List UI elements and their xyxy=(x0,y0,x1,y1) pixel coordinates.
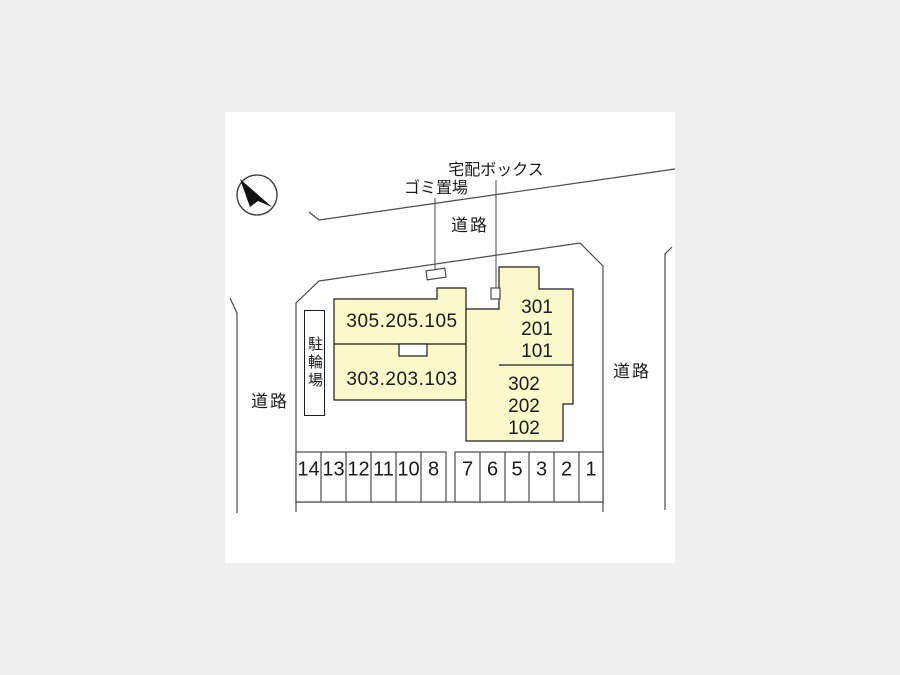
unit-102: 102 xyxy=(508,418,540,440)
parking-space-13: 13 xyxy=(322,459,344,482)
delivery-box-label: 宅配ボックス xyxy=(448,162,544,180)
parking-space-11: 11 xyxy=(373,459,394,482)
parking-space-3: 3 xyxy=(536,459,547,482)
right-road-line xyxy=(665,247,672,510)
bicycle-parking-area: 駐輪場 xyxy=(304,310,325,416)
parking-space-5: 5 xyxy=(511,459,522,482)
west-upper-units-label: 305.205.105 xyxy=(346,311,457,333)
parking-space-2: 2 xyxy=(561,459,572,482)
plan-drawing xyxy=(0,0,900,675)
east-lower-units-label: 302 202 102 xyxy=(508,374,540,440)
road-label-top: 道路 xyxy=(451,216,489,236)
road-label-left: 道路 xyxy=(251,392,289,412)
parking-space-6: 6 xyxy=(487,459,498,482)
bicycle-parking-label: 駐輪場 xyxy=(307,336,322,390)
west-building-entrance-notch xyxy=(399,344,427,356)
parking-space-8: 8 xyxy=(428,459,439,482)
unit-202: 202 xyxy=(508,396,540,418)
parking-row-right xyxy=(455,452,603,502)
parking-space-12: 12 xyxy=(347,459,369,482)
unit-301: 301 xyxy=(521,297,553,319)
parking-space-1: 1 xyxy=(585,459,596,482)
east-upper-units-label: 301 201 101 xyxy=(521,297,553,363)
parking-space-14: 14 xyxy=(297,459,319,482)
site-plan: 宅配ボックス ゴミ置場 道路 道路 道路 305.205.105 303.203… xyxy=(0,0,900,675)
delivery-box-marker xyxy=(491,288,500,299)
north-arrow-icon xyxy=(237,175,277,215)
unit-302: 302 xyxy=(508,374,540,396)
left-road-line xyxy=(230,298,237,513)
parking-space-10: 10 xyxy=(397,459,419,482)
parking-space-7: 7 xyxy=(462,459,473,482)
garbage-area-marker xyxy=(426,268,446,280)
unit-101: 101 xyxy=(521,341,553,363)
road-label-right: 道路 xyxy=(613,362,651,382)
garbage-area-label: ゴミ置場 xyxy=(404,180,468,198)
unit-201: 201 xyxy=(521,319,553,341)
west-lower-units-label: 303.203.103 xyxy=(346,369,457,391)
